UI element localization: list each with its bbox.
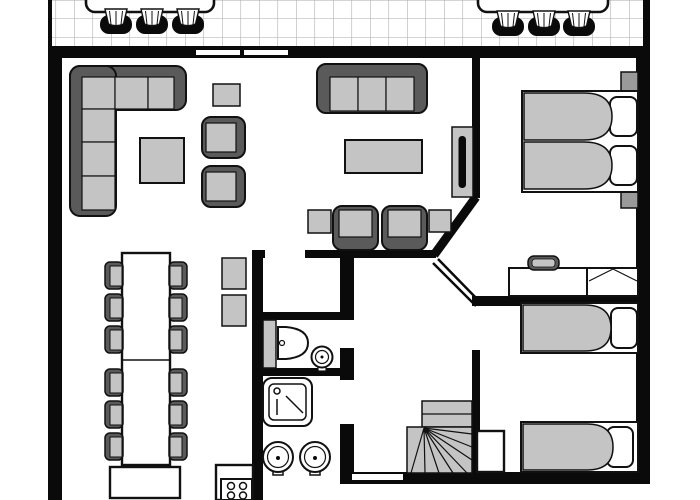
dining-chair bbox=[105, 433, 123, 460]
washbasin bbox=[263, 442, 293, 475]
armchair-seat bbox=[388, 210, 421, 237]
dining-chair bbox=[169, 369, 187, 396]
closet bbox=[477, 431, 504, 472]
hallway bbox=[407, 401, 472, 473]
corner-washbasin bbox=[312, 347, 333, 372]
serving-table bbox=[222, 295, 246, 326]
washbasin bbox=[300, 442, 330, 475]
terrace-left-edge bbox=[48, 0, 52, 46]
winder-staircase bbox=[407, 401, 472, 473]
dining-chair bbox=[169, 294, 187, 321]
single-bed bbox=[521, 303, 638, 353]
bench bbox=[110, 467, 180, 498]
kitchen bbox=[216, 465, 253, 500]
sofa-cushion bbox=[82, 109, 115, 142]
wall-bathroom-right bbox=[340, 348, 354, 380]
wall-living-divider bbox=[305, 250, 436, 258]
armchair-seat bbox=[206, 123, 236, 152]
dining-table bbox=[122, 253, 170, 465]
sofa-cushion bbox=[330, 77, 358, 111]
pillow bbox=[610, 97, 637, 136]
stove-burner bbox=[240, 483, 247, 490]
window bbox=[244, 50, 288, 55]
wall-diagonal-thin bbox=[438, 259, 480, 302]
sofa-cushion bbox=[386, 77, 414, 111]
stove bbox=[221, 479, 252, 500]
living-room bbox=[70, 64, 473, 250]
floor-plan-page bbox=[0, 0, 700, 500]
dining-chair bbox=[169, 401, 187, 428]
pillow bbox=[611, 308, 637, 348]
window bbox=[196, 50, 240, 55]
side-table bbox=[308, 210, 331, 233]
wall-top bbox=[48, 46, 650, 58]
armchair bbox=[333, 206, 378, 250]
side-table bbox=[429, 210, 451, 232]
desk bbox=[509, 268, 587, 296]
coffee-table bbox=[140, 138, 184, 183]
floor-plan-drawing bbox=[0, 0, 700, 500]
wall-bathroom-right bbox=[340, 424, 354, 472]
toilet-cistern bbox=[263, 320, 276, 368]
sofa-cushion bbox=[82, 176, 115, 210]
wall-bathroom-left bbox=[252, 250, 263, 500]
sofa bbox=[317, 64, 427, 113]
wall-bathroom-right bbox=[340, 250, 354, 320]
dining-chairs-left bbox=[105, 262, 123, 460]
terrace-table bbox=[478, 0, 608, 12]
dining-chair bbox=[105, 262, 123, 289]
dining-area bbox=[105, 253, 246, 498]
dining-chair bbox=[105, 294, 123, 321]
bedroom-1 bbox=[509, 72, 638, 296]
mattress bbox=[524, 93, 612, 140]
tv-screen bbox=[459, 136, 467, 188]
bathroom bbox=[263, 378, 330, 475]
toilet-room bbox=[263, 320, 333, 371]
wall-left bbox=[48, 46, 62, 500]
mattress bbox=[523, 305, 611, 351]
toilet-bowl bbox=[278, 327, 308, 359]
dining-chair bbox=[169, 433, 187, 460]
armchair-seat bbox=[339, 210, 372, 237]
tv-on-stand bbox=[452, 127, 473, 197]
dining-chair bbox=[105, 369, 123, 396]
sofa-cushion bbox=[82, 77, 115, 109]
stove-burner bbox=[228, 492, 235, 499]
open-wardrobe bbox=[587, 268, 638, 296]
pillow bbox=[610, 146, 637, 185]
sofa-cushion bbox=[82, 142, 115, 176]
sofa-cushion bbox=[358, 77, 386, 111]
armchair-seat bbox=[206, 172, 236, 201]
stove-burner bbox=[228, 483, 235, 490]
bedroom-2 bbox=[477, 303, 638, 472]
coffee-table bbox=[345, 140, 422, 173]
mattress bbox=[524, 142, 612, 189]
serving-table bbox=[222, 258, 246, 289]
armchair bbox=[202, 166, 245, 207]
dining-chair bbox=[169, 262, 187, 289]
single-bed bbox=[521, 422, 638, 472]
shower bbox=[263, 378, 312, 426]
sofa-cushion bbox=[148, 77, 174, 109]
desk-chair bbox=[528, 256, 559, 270]
stove-burner bbox=[240, 492, 247, 499]
wall-diagonal-thin bbox=[433, 263, 476, 306]
toilet bbox=[263, 320, 308, 368]
dining-chairs-right bbox=[169, 262, 187, 460]
mattress bbox=[523, 424, 613, 470]
nightstand bbox=[621, 72, 638, 91]
double-bed bbox=[522, 91, 638, 192]
terrace bbox=[48, 0, 650, 46]
shower-drain bbox=[274, 388, 280, 394]
stool bbox=[213, 84, 240, 106]
dining-chair bbox=[169, 326, 187, 353]
dining-chair bbox=[105, 401, 123, 428]
armchair bbox=[202, 117, 245, 158]
window bbox=[352, 474, 403, 480]
dining-chair bbox=[105, 326, 123, 353]
terrace-right-edge bbox=[643, 0, 650, 46]
sofa-cushion bbox=[115, 77, 148, 109]
armchair bbox=[382, 206, 427, 250]
